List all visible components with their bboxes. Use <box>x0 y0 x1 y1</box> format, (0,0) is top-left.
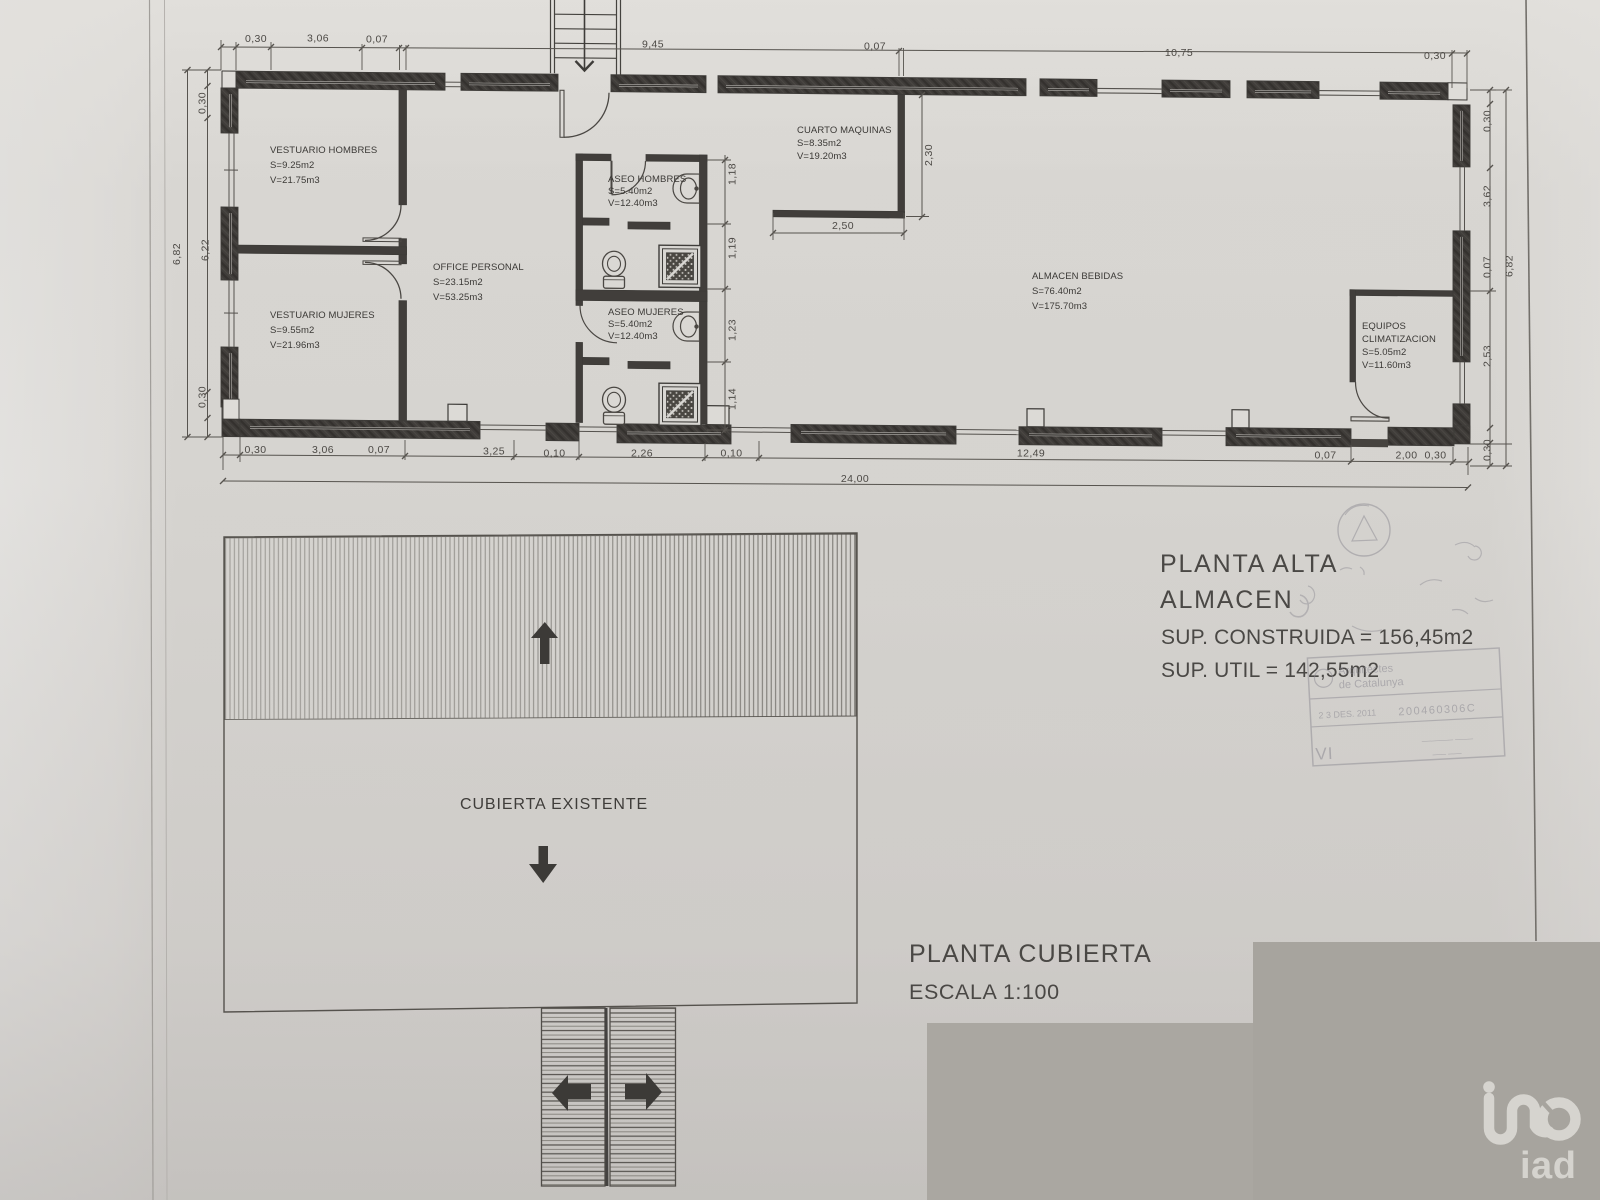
svg-text:2,50: 2,50 <box>832 220 854 232</box>
svg-text:200460306C: 200460306C <box>1398 702 1477 718</box>
svg-text:2,30: 2,30 <box>923 144 935 166</box>
svg-text:3,06: 3,06 <box>312 444 334 456</box>
svg-text:V=21.75m3: V=21.75m3 <box>270 175 320 186</box>
svg-text:0,07: 0,07 <box>1314 450 1336 462</box>
svg-text:PLANTA CUBIERTA: PLANTA CUBIERTA <box>909 940 1152 968</box>
svg-text:V=53.25m3: V=53.25m3 <box>433 292 483 303</box>
svg-text:V=21.96m3: V=21.96m3 <box>270 340 320 351</box>
svg-text:PLANTA ALTA: PLANTA ALTA <box>1160 550 1338 578</box>
svg-text:0,30: 0,30 <box>197 386 209 408</box>
svg-text:S=5.05m2: S=5.05m2 <box>1362 347 1406 358</box>
svg-text:ESCALA 1:100: ESCALA 1:100 <box>909 980 1060 1004</box>
svg-text:0,07: 0,07 <box>366 34 388 46</box>
svg-text:V=12.40m3: V=12.40m3 <box>608 198 658 209</box>
svg-text:S=5.40m2: S=5.40m2 <box>608 319 652 330</box>
svg-text:V=12.40m3: V=12.40m3 <box>608 331 658 342</box>
svg-text:0,30: 0,30 <box>1482 439 1494 461</box>
svg-text:9,45: 9,45 <box>642 39 664 51</box>
svg-text:ALMACEN BEBIDAS: ALMACEN BEBIDAS <box>1032 271 1123 282</box>
svg-text:ASEO HOMBRES: ASEO HOMBRES <box>608 174 686 185</box>
svg-text:0,07: 0,07 <box>1482 256 1494 278</box>
svg-text:OFFICE PERSONAL: OFFICE PERSONAL <box>433 262 524 273</box>
svg-text:de Catalunya: de Catalunya <box>1339 676 1405 691</box>
svg-text:S=9.55m2: S=9.55m2 <box>270 325 314 336</box>
svg-text:_______ ____: _______ ____ <box>1420 730 1473 742</box>
svg-text:0,30: 0,30 <box>1482 110 1494 132</box>
svg-text:VI: VI <box>1315 744 1334 764</box>
svg-text:3,06: 3,06 <box>307 33 329 45</box>
svg-text:0,07: 0,07 <box>864 41 886 53</box>
svg-text:0,10: 0,10 <box>720 448 742 460</box>
svg-text:6,82: 6,82 <box>1504 255 1516 277</box>
svg-text:0,30: 0,30 <box>1424 50 1446 62</box>
svg-text:CUARTO MAQUINAS: CUARTO MAQUINAS <box>797 125 892 136</box>
svg-text:ALMACEN: ALMACEN <box>1160 586 1293 614</box>
svg-text:1,14: 1,14 <box>727 388 739 410</box>
svg-text:Arquitectes: Arquitectes <box>1338 663 1394 678</box>
svg-text:V=11.60m3: V=11.60m3 <box>1362 360 1411 371</box>
svg-text:0,30: 0,30 <box>245 33 267 45</box>
svg-text:0,30: 0,30 <box>244 444 266 456</box>
svg-text:12,49: 12,49 <box>1017 448 1045 460</box>
svg-text:S=23.15m2: S=23.15m2 <box>433 277 483 288</box>
svg-text:0,07: 0,07 <box>368 444 390 456</box>
svg-text:ASEO MUJERES: ASEO MUJERES <box>608 307 684 318</box>
svg-text:S=76.40m2: S=76.40m2 <box>1032 286 1082 297</box>
svg-text:S=5.40m2: S=5.40m2 <box>608 186 652 197</box>
svg-text:0,30: 0,30 <box>197 92 209 114</box>
svg-text:10,75: 10,75 <box>1165 47 1193 59</box>
svg-text:___ ___: ___ ___ <box>1431 745 1462 756</box>
svg-text:1,23: 1,23 <box>727 319 739 341</box>
svg-text:24,00: 24,00 <box>841 473 869 485</box>
svg-text:VESTUARIO HOMBRES: VESTUARIO HOMBRES <box>270 145 377 156</box>
svg-text:2,26: 2,26 <box>631 448 653 460</box>
svg-text:2 3 DES. 2011: 2 3 DES. 2011 <box>1318 708 1376 721</box>
svg-text:1,18: 1,18 <box>727 163 739 185</box>
svg-text:S=9.25m2: S=9.25m2 <box>270 160 314 171</box>
svg-text:0,10: 0,10 <box>543 448 565 460</box>
svg-text:3,62: 3,62 <box>1482 185 1494 207</box>
svg-text:EQUIPOS: EQUIPOS <box>1362 321 1406 332</box>
svg-text:1,19: 1,19 <box>727 237 739 259</box>
svg-text:iad: iad <box>1520 1145 1576 1187</box>
svg-text:6,22: 6,22 <box>200 239 212 261</box>
svg-text:3,25: 3,25 <box>483 446 505 458</box>
svg-text:S=8.35m2: S=8.35m2 <box>797 138 841 149</box>
svg-text:SUP. CONSTRUIDA = 156,45m2: SUP. CONSTRUIDA = 156,45m2 <box>1161 626 1473 649</box>
svg-text:2,00: 2,00 <box>1395 450 1417 462</box>
svg-text:6,82: 6,82 <box>171 243 183 265</box>
svg-text:0,30: 0,30 <box>1424 450 1446 462</box>
svg-text:CUBIERTA EXISTENTE: CUBIERTA EXISTENTE <box>460 796 648 813</box>
svg-text:VESTUARIO MUJERES: VESTUARIO MUJERES <box>270 310 375 321</box>
svg-text:CLIMATIZACION: CLIMATIZACION <box>1362 334 1436 345</box>
svg-text:V=19.20m3: V=19.20m3 <box>797 151 847 162</box>
svg-text:V=175.70m3: V=175.70m3 <box>1032 301 1087 312</box>
svg-text:2,53: 2,53 <box>1482 345 1494 367</box>
